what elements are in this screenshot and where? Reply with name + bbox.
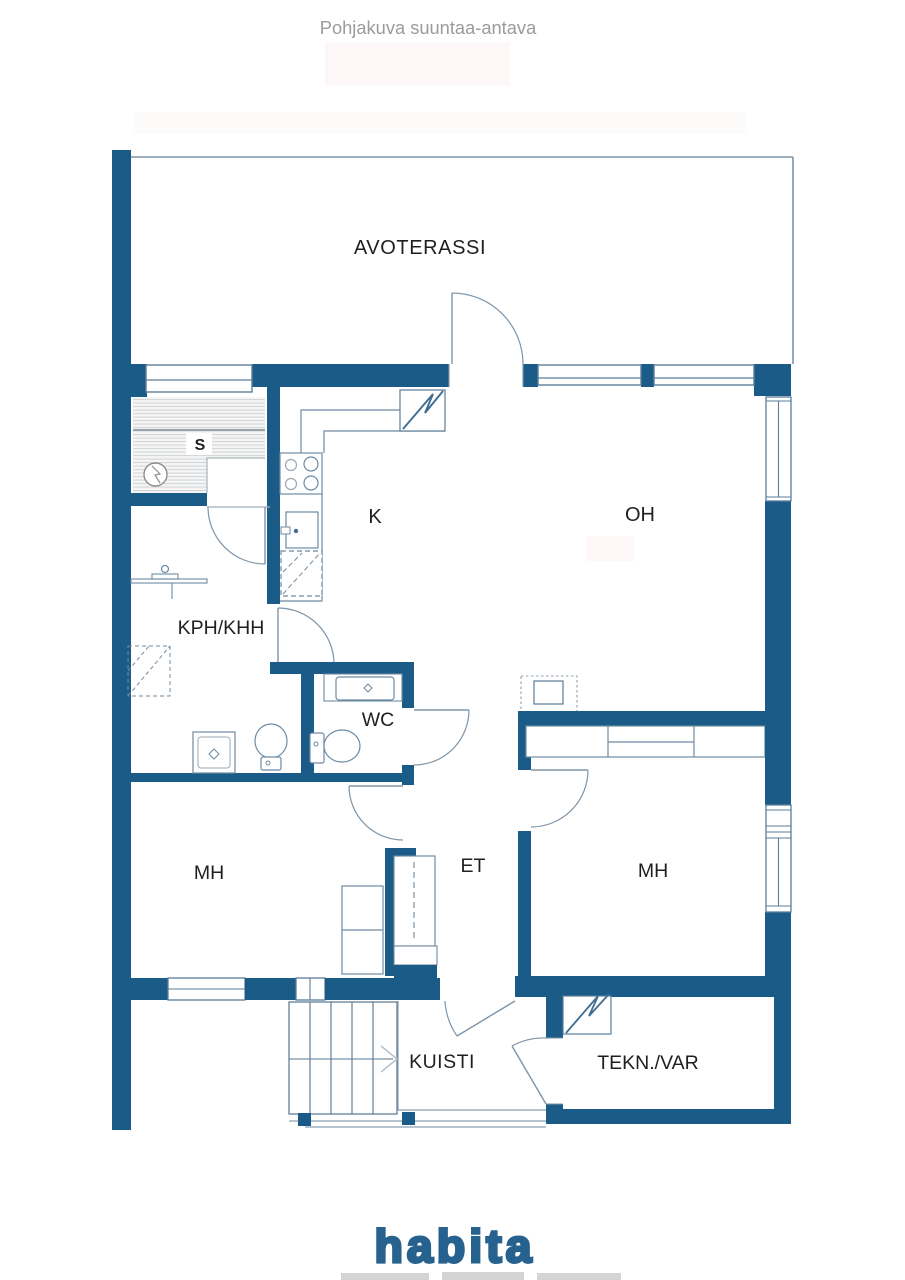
svg-text:ET: ET	[461, 855, 486, 877]
svg-text:MH: MH	[194, 862, 224, 884]
svg-text:WC: WC	[362, 709, 395, 731]
svg-text:habita: habita	[375, 1220, 536, 1272]
svg-text:Pohjakuva suuntaa-antava: Pohjakuva suuntaa-antava	[320, 17, 537, 38]
svg-text:S: S	[195, 437, 206, 454]
svg-text:TEKN./VAR: TEKN./VAR	[597, 1052, 699, 1074]
svg-text:KPH/KHH: KPH/KHH	[178, 617, 265, 639]
svg-text:K: K	[368, 506, 382, 528]
svg-text:AVOTERASSI: AVOTERASSI	[354, 237, 486, 259]
svg-text:MH: MH	[638, 860, 668, 882]
svg-text:KUISTI: KUISTI	[409, 1051, 475, 1073]
svg-text:OH: OH	[625, 504, 655, 526]
